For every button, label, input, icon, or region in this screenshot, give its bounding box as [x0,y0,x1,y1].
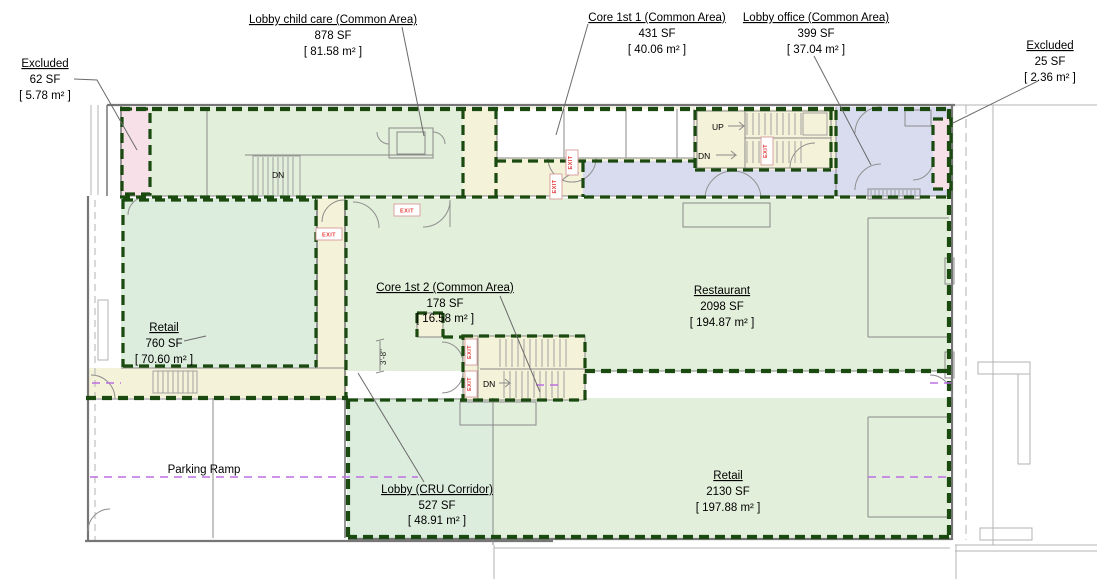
area-m2: [ 40.06 m² ] [628,44,686,56]
area-label-lobby-child-care: Lobby child care (Common Area) 878 SF [ … [249,14,417,58]
exit-label: EXIT [322,233,336,239]
exit-sign-icon: EXIT [316,228,342,240]
area-name: Retail [713,470,742,482]
area-name: Lobby office (Common Area) [743,12,889,24]
dn-label: DN [272,170,284,180]
area-sf: 399 SF [797,28,834,40]
area-sf: 527 SF [418,500,455,512]
exit-label: EXIT [568,155,574,169]
exit-sign-icon: EXIT [550,174,562,199]
dn-label: DN [698,151,710,161]
leader-excluded-right [953,81,1038,123]
area-sf: 878 SF [314,30,351,42]
area-name: Core 1st 1 (Common Area) [588,12,726,24]
area-sf: 62 SF [30,74,61,86]
area-name: Lobby (CRU Corridor) [381,484,493,496]
area-sf: 2098 SF [700,301,743,313]
region-lobby-office-corridor2 [695,170,838,196]
exit-label: EXIT [552,179,558,193]
exit-label: EXIT [763,144,769,158]
exit-sign-icon: EXIT [465,371,477,397]
area-label-excluded-left: Excluded 62 SF [ 5.78 m² ] [19,58,71,102]
area-sf: 760 SF [145,338,182,350]
region-excluded-left [121,107,150,196]
area-m2: [ 48.91 m² ] [408,515,466,527]
area-m2: [ 2.36 m² ] [1024,72,1076,84]
area-sf: 25 SF [1035,56,1066,68]
area-m2: [ 81.58 m² ] [304,46,362,58]
area-sf: 178 SF [426,298,463,310]
area-sf: 431 SF [638,28,675,40]
up-label: UP [712,122,724,132]
region-lobby-office-corridor [583,161,695,196]
area-name: Lobby child care (Common Area) [249,14,417,26]
floor-plan-canvas: EXIT EXIT EXIT EXIT EXIT EXIT EXIT UP [0,0,1097,579]
area-label-parking-ramp: Parking Ramp [168,464,241,476]
area-name: Retail [149,322,178,334]
exit-label: EXIT [467,377,473,391]
area-m2: [ 197.88 m² ] [696,502,761,514]
region-core-rooms [497,109,694,158]
exit-label: EXIT [400,209,414,215]
area-name: Core 1st 2 (Common Area) [376,282,514,294]
exit-sign-icon: EXIT [394,204,420,216]
area-m2: [ 194.87 m² ] [690,317,755,329]
area-label-lobby-office: Lobby office (Common Area) 399 SF [ 37.0… [743,12,889,56]
floor-plan-drawing: EXIT EXIT EXIT EXIT EXIT EXIT EXIT UP [0,0,1097,579]
area-m2: [ 5.78 m² ] [19,90,71,102]
area-m2: [ 16.58 m² ] [416,313,474,325]
area-name: Parking Ramp [168,464,241,476]
exit-sign-icon: EXIT [566,150,578,175]
exit-sign-icon: EXIT [465,339,477,365]
area-m2: [ 37.04 m² ] [787,44,845,56]
area-label-excluded-right: Excluded 25 SF [ 2.36 m² ] [1024,40,1076,84]
exit-sign-icon: EXIT [761,137,773,165]
area-name: Restaurant [694,285,751,297]
area-sf: 2130 SF [706,486,749,498]
area-name: Excluded [1026,40,1073,52]
area-label-core-1st-1: Core 1st 1 (Common Area) 431 SF [ 40.06 … [588,12,726,56]
exit-label: EXIT [467,345,473,359]
region-corridor-strip-h [88,368,347,398]
dn-label: DN [483,379,495,389]
region-lobby-child-care [150,107,463,196]
area-m2: [ 70.60 m² ] [135,354,193,366]
area-name: Excluded [21,58,68,70]
